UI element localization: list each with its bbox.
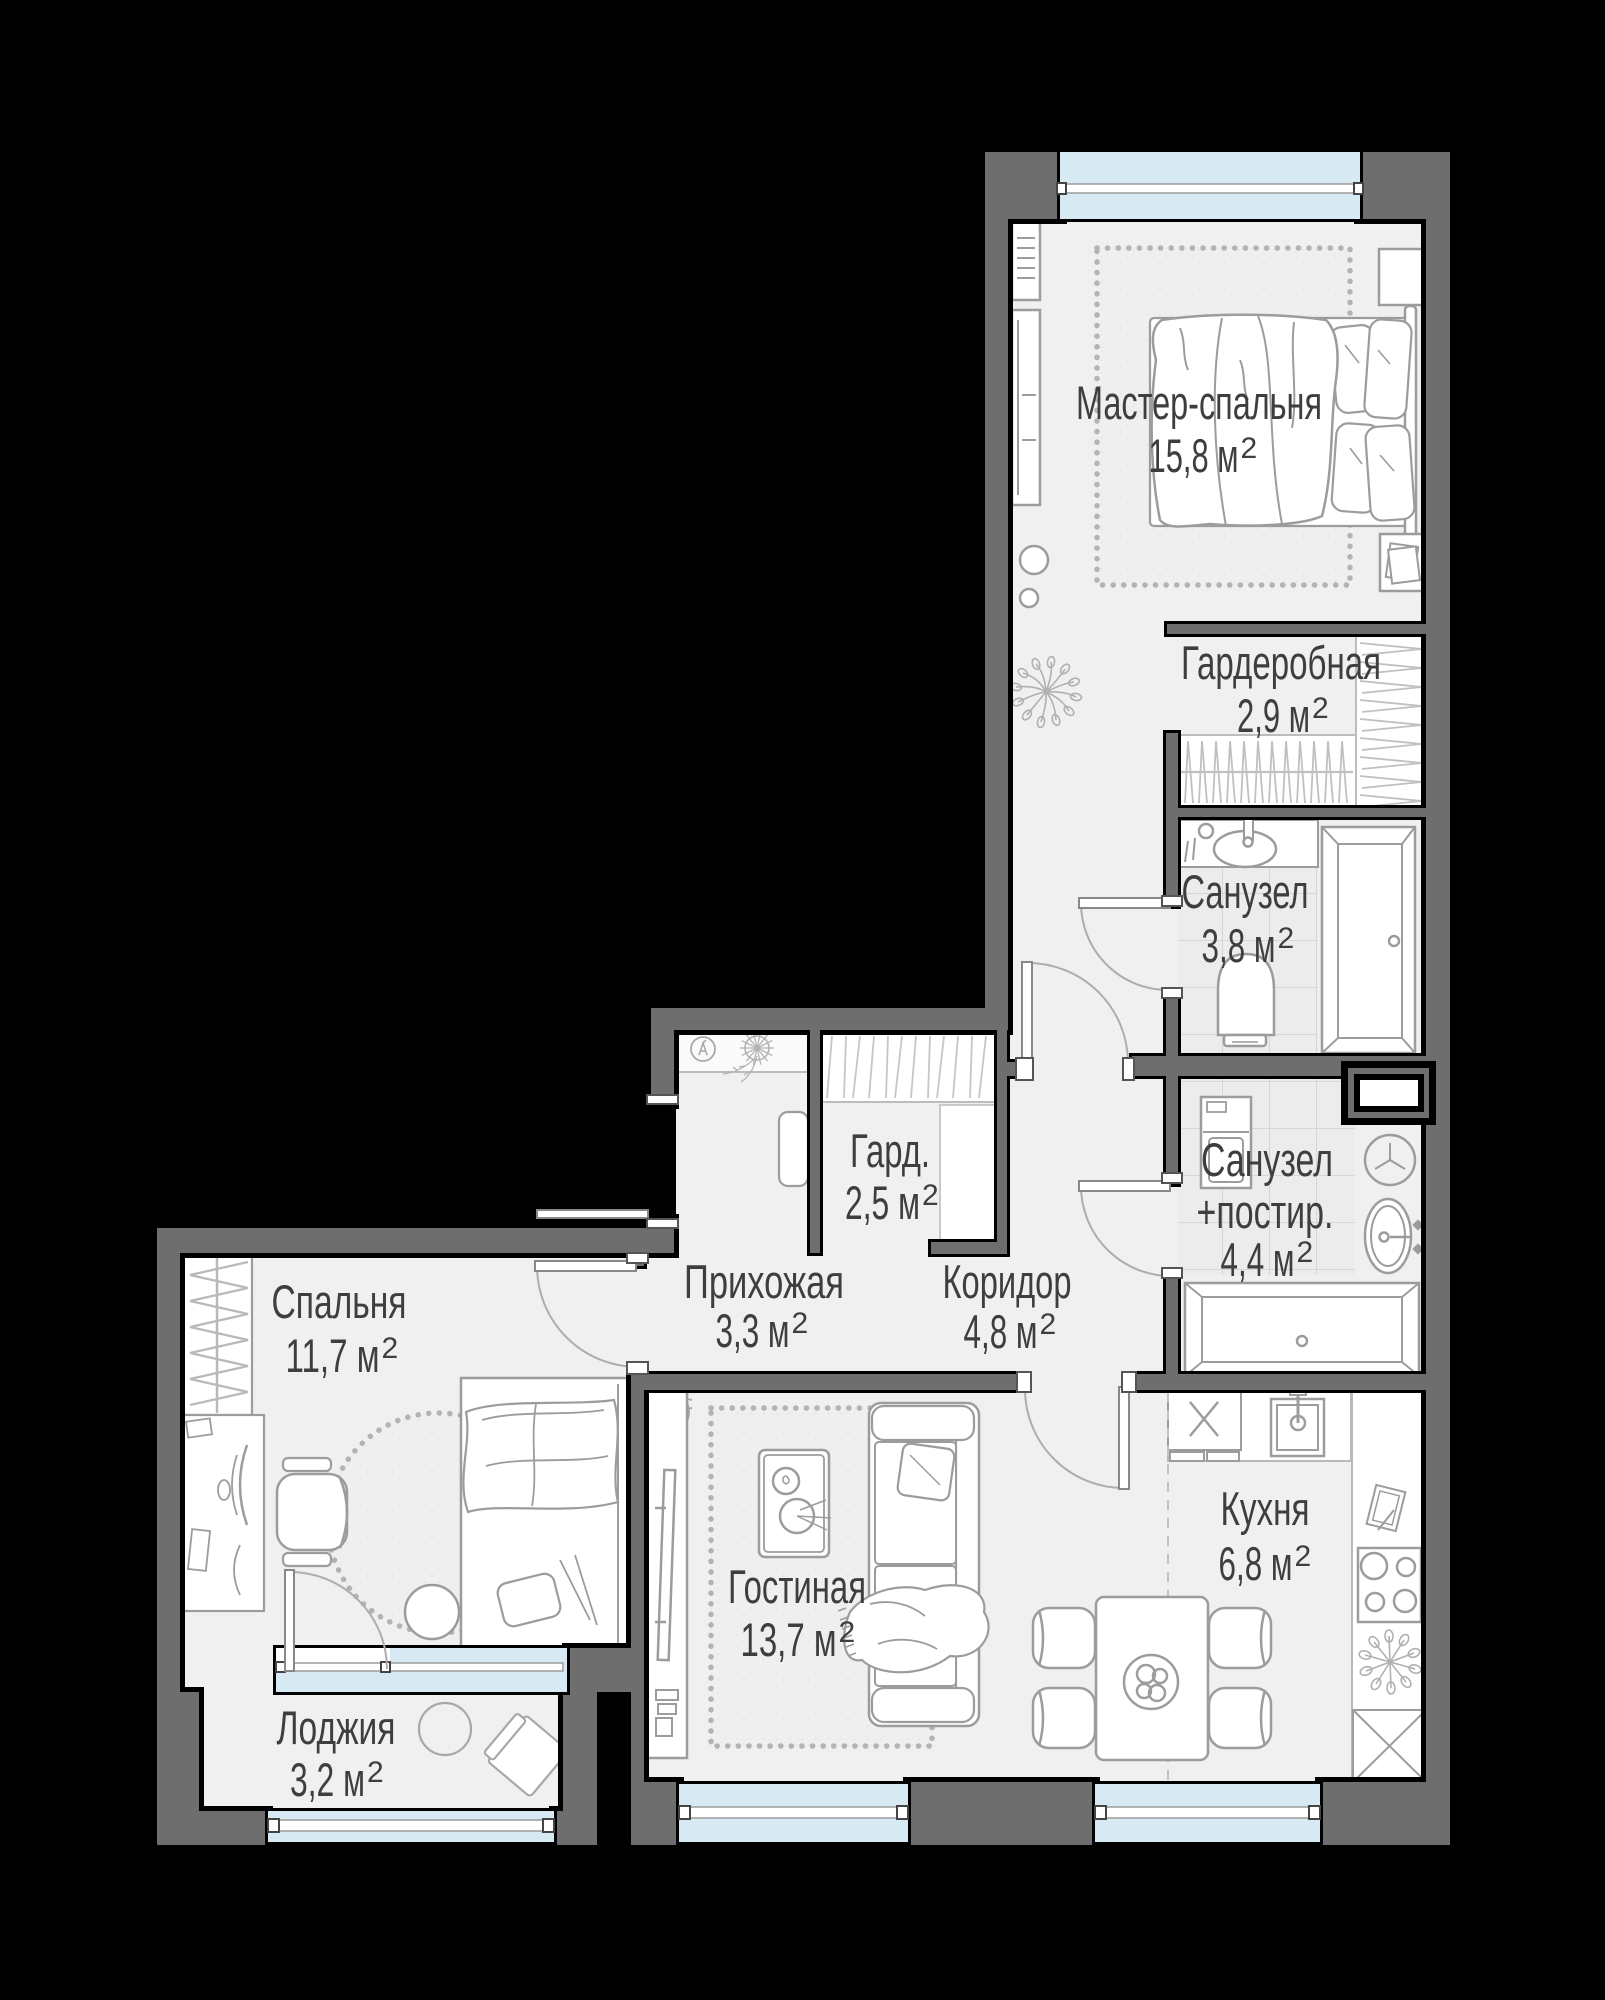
svg-text:3,2 м: 3,2 м <box>290 1753 365 1806</box>
svg-text:+постир.: +постир. <box>1197 1185 1334 1238</box>
svg-text:6,8 м: 6,8 м <box>1219 1537 1293 1590</box>
svg-text:2: 2 <box>839 1616 856 1649</box>
svg-text:2: 2 <box>382 1332 399 1365</box>
svg-text:2: 2 <box>1241 432 1258 465</box>
svg-text:2,9 м: 2,9 м <box>1237 689 1310 742</box>
svg-text:Коридор: Коридор <box>943 1255 1072 1308</box>
svg-text:Спальня: Спальня <box>272 1275 407 1328</box>
svg-text:Кухня: Кухня <box>1221 1482 1310 1535</box>
svg-text:2: 2 <box>922 1179 939 1212</box>
svg-text:2: 2 <box>1278 922 1295 955</box>
svg-text:2: 2 <box>1040 1308 1057 1341</box>
svg-text:15,8 м: 15,8 м <box>1149 429 1239 482</box>
svg-text:Гостиная: Гостиная <box>728 1560 866 1613</box>
svg-text:Лоджия: Лоджия <box>277 1701 396 1754</box>
svg-text:2: 2 <box>792 1307 809 1340</box>
svg-text:3,3 м: 3,3 м <box>716 1304 790 1357</box>
svg-text:Прихожая: Прихожая <box>684 1255 844 1308</box>
svg-text:4,8 м: 4,8 м <box>964 1305 1038 1358</box>
svg-text:Санузел: Санузел <box>1201 1133 1333 1186</box>
svg-text:2,5 м: 2,5 м <box>845 1176 920 1229</box>
svg-text:2: 2 <box>1312 692 1329 725</box>
svg-text:11,7 м: 11,7 м <box>286 1329 380 1382</box>
svg-text:Мастер-спальня: Мастер-спальня <box>1076 376 1322 429</box>
svg-text:4,4 м: 4,4 м <box>1221 1233 1295 1286</box>
svg-text:2: 2 <box>1297 1236 1314 1269</box>
svg-text:Гардеробная: Гардеробная <box>1181 636 1381 689</box>
svg-text:2: 2 <box>1295 1540 1312 1573</box>
svg-text:Гард.: Гард. <box>850 1124 930 1177</box>
svg-text:3,8 м: 3,8 м <box>1202 919 1276 972</box>
svg-text:13,7 м: 13,7 м <box>741 1613 837 1666</box>
svg-text:2: 2 <box>367 1756 384 1789</box>
svg-text:Санузел: Санузел <box>1182 865 1309 918</box>
